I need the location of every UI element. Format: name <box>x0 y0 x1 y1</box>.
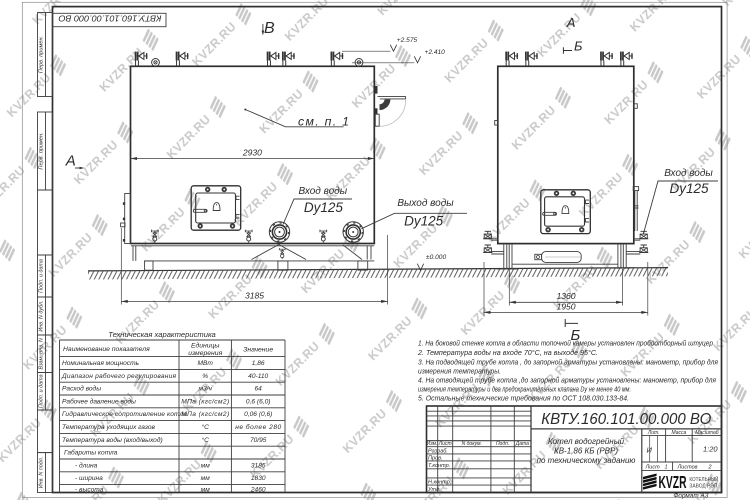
svg-text:А: А <box>566 15 576 30</box>
svg-text:1:20: 1:20 <box>703 445 718 454</box>
svg-text:КВ-1,86 КБ (РВР): КВ-1,86 КБ (РВР) <box>554 447 618 456</box>
svg-text:4. На отводящей трубе котла ,: 4. На отводящей трубе котла ,до запорной… <box>418 377 716 385</box>
svg-text:Значение: Значение <box>243 347 273 354</box>
svg-text:Расход воды: Расход воды <box>62 385 101 393</box>
svg-text:- длина: - длина <box>75 461 98 469</box>
svg-text:Инв. N подл.: Инв. N подл. <box>39 457 45 489</box>
svg-text:+2.410: +2.410 <box>425 49 446 56</box>
svg-text:Подп. и дата: Подп. и дата <box>39 259 45 293</box>
svg-text:1,86: 1,86 <box>252 360 265 367</box>
svg-text:Взам. инв. N: Взам. инв. N <box>39 338 45 370</box>
svg-text:КВТУ.160.101.00.000 ВО: КВТУ.160.101.00.000 ВО <box>58 14 162 23</box>
svg-text:KVZR: KVZR <box>659 472 687 492</box>
svg-text:1830: 1830 <box>251 475 266 482</box>
svg-text:°С: °С <box>201 436 209 444</box>
svg-text:Пров.: Пров. <box>428 456 443 462</box>
svg-text:3185: 3185 <box>245 290 264 300</box>
svg-text:Dy125: Dy125 <box>304 200 344 215</box>
svg-text:64: 64 <box>255 386 263 393</box>
svg-text:измерения температуры и два пр: измерения температуры и два предохраните… <box>418 386 631 394</box>
svg-text:Масса: Масса <box>672 430 687 436</box>
svg-text:мм: мм <box>201 475 211 482</box>
svg-text:1360: 1360 <box>556 291 575 301</box>
svg-text:Дата: Дата <box>515 441 529 447</box>
svg-text:Диапазон рабочего регулировани: Диапазон рабочего регулирования <box>61 372 176 380</box>
svg-text:В: В <box>264 20 275 37</box>
svg-text:°С: °С <box>201 423 209 431</box>
svg-text:Подп. и дата: Подп. и дата <box>39 374 45 408</box>
svg-text:2930: 2930 <box>242 147 262 157</box>
svg-text:Масштаб: Масштаб <box>695 430 719 436</box>
svg-text:Перв. примен.: Перв. примен. <box>38 36 44 73</box>
svg-text:Лист: Лист <box>438 441 452 447</box>
svg-text:Вход воды: Вход воды <box>299 186 348 197</box>
svg-text:3. На подводящей трубе котла: 3. На подводящей трубе котла , до запорн… <box>418 358 718 366</box>
svg-text:Н.контр.: Н.контр. <box>428 480 451 486</box>
svg-text:Наименование показателя: Наименование показателя <box>63 346 150 353</box>
svg-text:Лит.: Лит. <box>647 430 660 436</box>
svg-text:3185: 3185 <box>251 462 266 469</box>
svg-text:Температура воды (вход/выход): Температура воды (вход/выход) <box>62 436 163 444</box>
svg-text:Подп.: Подп. <box>496 441 509 447</box>
svg-text:Выход воды: Выход воды <box>397 198 454 209</box>
svg-text:±0.000: ±0.000 <box>426 254 446 261</box>
svg-text:Гидравлическое сопротивление к: Гидравлическое сопротивление котла <box>62 410 187 418</box>
svg-text:1: 1 <box>665 465 668 471</box>
svg-text:0,06 (0,6): 0,06 (0,6) <box>244 411 272 418</box>
svg-text:%: % <box>202 373 208 380</box>
svg-text:Температура уходящих газов: Температура уходящих газов <box>62 423 155 431</box>
svg-text:Формат А3: Формат А3 <box>673 493 708 500</box>
svg-text:не более 280: не более 280 <box>235 423 281 431</box>
svg-text:40-110: 40-110 <box>248 373 268 380</box>
svg-text:N докум.: N докум. <box>462 441 482 447</box>
svg-text:МПа (кгс/см2): МПа (кгс/см2) <box>181 398 229 405</box>
svg-text:МВт: МВт <box>198 360 214 367</box>
svg-text:Лист: Лист <box>645 465 661 471</box>
svg-text:Техническая характеристика: Техническая характеристика <box>108 330 216 339</box>
svg-text:Т.контр.: Т.контр. <box>428 463 450 469</box>
svg-text:Dy125: Dy125 <box>669 181 709 196</box>
svg-text:Инв. N дубл.: Инв. N дубл. <box>39 300 45 331</box>
svg-text:И: И <box>647 446 653 455</box>
svg-text:1. На боковой стенке котла в: 1. На боковой стенке котла в области топ… <box>418 340 713 348</box>
svg-text:м3/ч: м3/ч <box>198 386 212 393</box>
svg-text:Перв. примен.: Перв. примен. <box>38 132 44 169</box>
svg-text:по техническому заданию: по техническому заданию <box>537 456 636 465</box>
svg-text:Dy125: Dy125 <box>404 213 444 228</box>
svg-text:Котел водогрейный: Котел водогрейный <box>548 437 625 446</box>
svg-text:2. Температура воды на входе: 2. Температура воды на входе 70°С, на вы… <box>417 349 598 357</box>
svg-text:Изм.: Изм. <box>427 441 438 447</box>
svg-text:0,6 (6,0): 0,6 (6,0) <box>246 398 271 405</box>
svg-text:2: 2 <box>708 465 712 471</box>
svg-text:Разраб.: Разраб. <box>428 449 448 455</box>
svg-text:измерения: измерения <box>188 350 222 357</box>
svg-text:1950: 1950 <box>556 302 575 312</box>
svg-text:+2.575: +2.575 <box>397 37 418 44</box>
svg-text:70/95: 70/95 <box>250 437 267 444</box>
svg-text:Единицы: Единицы <box>191 342 219 350</box>
svg-text:2460: 2460 <box>250 487 266 494</box>
svg-text:5. Остальные технические треб: 5. Остальные технические требования по О… <box>418 395 629 403</box>
svg-text:А: А <box>65 153 76 170</box>
svg-text:измерения температуры.: измерения температуры. <box>418 368 501 375</box>
svg-text:Габариты котла: Габариты котла <box>64 449 118 457</box>
svg-text:Утв.: Утв. <box>427 487 441 493</box>
svg-text:Вход воды: Вход воды <box>664 168 713 179</box>
svg-text:Рабочее давление воды: Рабочее давление воды <box>62 397 136 405</box>
svg-text:Листов: Листов <box>677 465 698 471</box>
svg-text:мм: мм <box>201 487 211 494</box>
svg-text:Б: Б <box>574 39 583 54</box>
svg-text:МПа (кгс/см2): МПа (кгс/см2) <box>181 411 229 418</box>
svg-text:- ширина: - ширина <box>75 475 103 482</box>
svg-text:Номинальная мощность: Номинальная мощность <box>62 360 140 367</box>
svg-text:КВТУ.160.101.00.000 ВО: КВТУ.160.101.00.000 ВО <box>541 411 711 428</box>
svg-text:мм: мм <box>201 462 211 469</box>
svg-text:ЗАВОД РЭП: ЗАВОД РЭП <box>689 483 717 489</box>
svg-text:КОТЕЛЬНЫЙ: КОТЕЛЬНЫЙ <box>689 475 718 483</box>
svg-text:- высота: - высота <box>75 487 104 494</box>
